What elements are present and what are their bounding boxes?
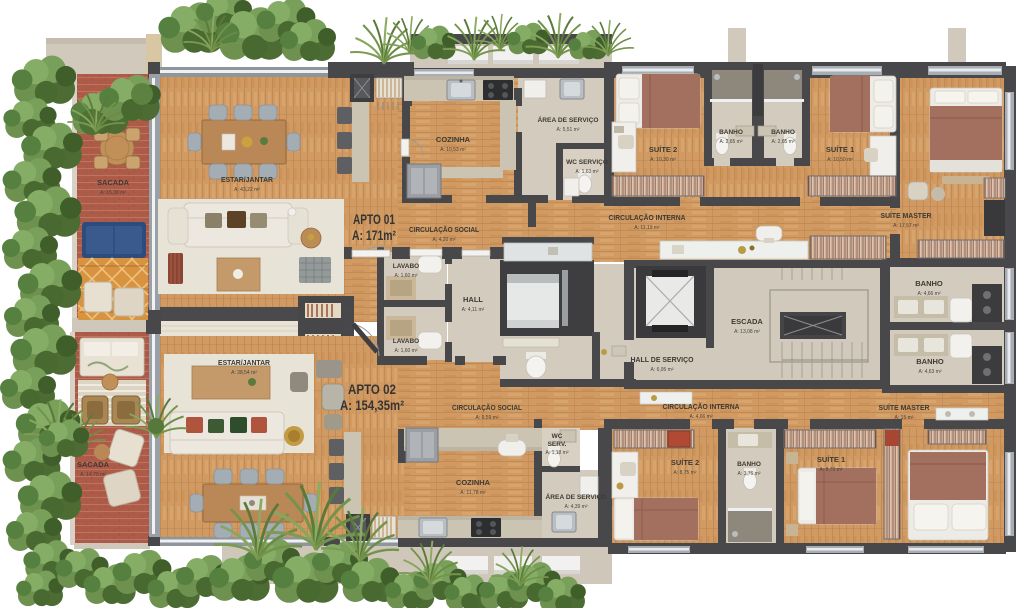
svg-text:ÁREA DE SERVIÇO: ÁREA DE SERVIÇO <box>546 492 607 501</box>
svg-text:APTO 02: APTO 02 <box>348 382 396 397</box>
svg-text:SACADA: SACADA <box>77 460 110 469</box>
svg-text:WC SERVIÇO: WC SERVIÇO <box>566 159 608 166</box>
svg-text:A: 11,78 m²: A: 11,78 m² <box>460 490 486 496</box>
svg-text:A: 4,63 m²: A: 4,63 m² <box>918 369 941 375</box>
svg-text:A: 4,11 m²: A: 4,11 m² <box>462 307 485 313</box>
svg-text:A: 8,75 m²: A: 8,75 m² <box>673 470 696 476</box>
svg-text:A: 15 m²: A: 15 m² <box>895 415 914 421</box>
svg-text:A: 10,53 m²: A: 10,53 m² <box>440 147 466 153</box>
svg-text:BANHO: BANHO <box>915 279 943 288</box>
svg-text:ÁREA DE SERVIÇO: ÁREA DE SERVIÇO <box>538 115 599 124</box>
svg-text:LAVABO: LAVABO <box>393 338 419 345</box>
svg-text:A: 4,39 m²: A: 4,39 m² <box>564 504 587 510</box>
svg-text:SUÍTE MASTER: SUÍTE MASTER <box>879 403 931 412</box>
svg-text:BANHO: BANHO <box>737 461 761 468</box>
svg-text:BANHO: BANHO <box>719 129 743 136</box>
svg-text:A: 1,60 m²: A: 1,60 m² <box>394 348 417 354</box>
svg-text:CIRCULAÇÃO SOCIAL: CIRCULAÇÃO SOCIAL <box>409 225 479 234</box>
svg-text:WC: WC <box>552 433 563 440</box>
svg-text:CIRCULAÇÃO SOCIAL: CIRCULAÇÃO SOCIAL <box>452 403 522 412</box>
svg-text:SUÍTE 1: SUÍTE 1 <box>826 145 854 154</box>
svg-text:BANHO: BANHO <box>916 357 944 366</box>
svg-text:A: 4,66 m²: A: 4,66 m² <box>689 414 712 420</box>
svg-text:ESTAR/JANTAR: ESTAR/JANTAR <box>221 175 274 184</box>
svg-text:A: 8,70 m²: A: 8,70 m² <box>819 467 842 473</box>
svg-text:SACADA: SACADA <box>97 178 130 187</box>
svg-text:A: 13,08 m²: A: 13,08 m² <box>734 329 760 335</box>
svg-text:A: 14,70 m²: A: 14,70 m² <box>80 472 106 478</box>
svg-text:A: 4,20 m²: A: 4,20 m² <box>432 237 455 243</box>
svg-text:COZINHA: COZINHA <box>436 135 471 144</box>
svg-text:SUÍTE MASTER: SUÍTE MASTER <box>881 211 933 220</box>
svg-text:A: 5,51 m²: A: 5,51 m² <box>556 127 579 133</box>
svg-text:APTO 01: APTO 01 <box>353 212 395 227</box>
svg-text:LAVABO: LAVABO <box>393 263 419 270</box>
svg-text:A: 38,54 m²: A: 38,54 m² <box>231 370 257 376</box>
svg-text:A: 1,60 m²: A: 1,60 m² <box>394 273 417 279</box>
svg-text:SERV.: SERV. <box>548 441 567 448</box>
svg-text:SUÍTE 2: SUÍTE 2 <box>649 145 677 154</box>
svg-text:HALL DE SERVIÇO: HALL DE SERVIÇO <box>631 355 694 364</box>
svg-text:A: 15,38 m²: A: 15,38 m² <box>100 190 126 196</box>
svg-text:ESCADA: ESCADA <box>731 317 763 326</box>
svg-text:A: 2,65 m²: A: 2,65 m² <box>719 139 742 145</box>
svg-text:HALL: HALL <box>463 295 483 304</box>
svg-text:A: 6,95 m²: A: 6,95 m² <box>650 367 673 373</box>
svg-text:BANHO: BANHO <box>771 129 795 136</box>
svg-text:A: 4,66 m²: A: 4,66 m² <box>917 291 940 297</box>
svg-text:A: 17,57 m²: A: 17,57 m² <box>893 223 919 229</box>
svg-text:A: 171m²: A: 171m² <box>352 228 396 243</box>
svg-text:A: 11,19 m²: A: 11,19 m² <box>634 225 660 231</box>
svg-text:CIRCULAÇÃO INTERNA: CIRCULAÇÃO INTERNA <box>663 402 741 411</box>
svg-text:COZINHA: COZINHA <box>456 478 491 487</box>
svg-text:A: 10,30 m²: A: 10,30 m² <box>650 157 676 163</box>
svg-text:SUÍTE 1: SUÍTE 1 <box>817 455 845 464</box>
svg-text:SUÍTE 2: SUÍTE 2 <box>671 458 699 467</box>
svg-text:A: 10,50 m²: A: 10,50 m² <box>827 157 853 163</box>
svg-text:A: 2,65 m²: A: 2,65 m² <box>771 139 794 145</box>
svg-text:A: 3,76 m²: A: 3,76 m² <box>737 471 760 477</box>
svg-text:A: 1,63 m²: A: 1,63 m² <box>575 169 598 175</box>
svg-text:A: 1,18 m²: A: 1,18 m² <box>545 450 568 456</box>
svg-text:A: 43,22 m²: A: 43,22 m² <box>234 187 260 193</box>
svg-text:CIRCULAÇÃO INTERNA: CIRCULAÇÃO INTERNA <box>609 213 687 222</box>
svg-text:A: 154,35m²: A: 154,35m² <box>340 398 404 413</box>
svg-text:A: 9,59 m²: A: 9,59 m² <box>475 415 498 421</box>
svg-text:ESTAR/JANTAR: ESTAR/JANTAR <box>218 358 271 367</box>
